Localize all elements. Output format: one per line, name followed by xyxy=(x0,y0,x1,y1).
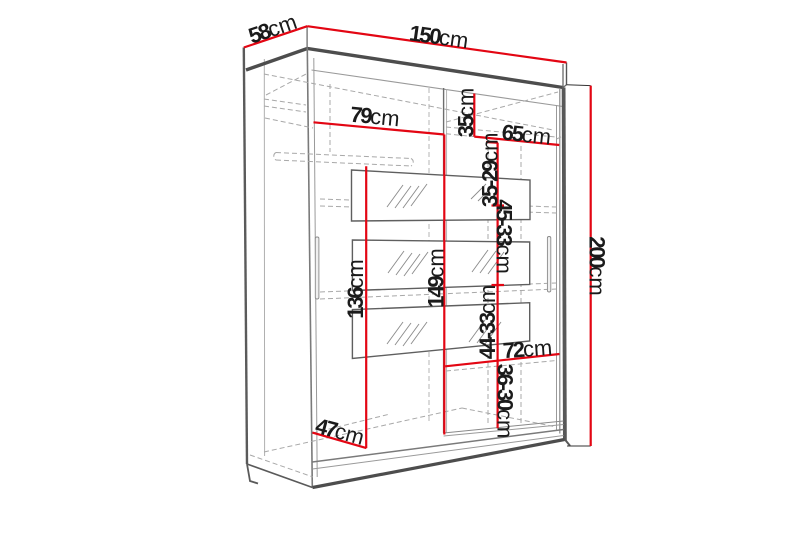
svg-text:44-33cm: 44-33cm xyxy=(475,285,500,360)
svg-text:149cm: 149cm xyxy=(423,248,448,307)
svg-text:47cm: 47cm xyxy=(313,413,367,450)
svg-text:45-33cm: 45-33cm xyxy=(492,199,517,274)
svg-text:65cm: 65cm xyxy=(501,119,553,149)
svg-text:136cm: 136cm xyxy=(343,259,368,318)
svg-text:35cm: 35cm xyxy=(453,88,478,137)
svg-text:200cm: 200cm xyxy=(585,236,610,295)
svg-text:35-29cm: 35-29cm xyxy=(477,132,502,207)
svg-text:36-30cm: 36-30cm xyxy=(493,364,518,439)
svg-text:79cm: 79cm xyxy=(349,101,401,131)
svg-text:72cm: 72cm xyxy=(502,334,553,362)
svg-text:58cm: 58cm xyxy=(245,8,300,48)
svg-text:150cm: 150cm xyxy=(408,20,470,53)
